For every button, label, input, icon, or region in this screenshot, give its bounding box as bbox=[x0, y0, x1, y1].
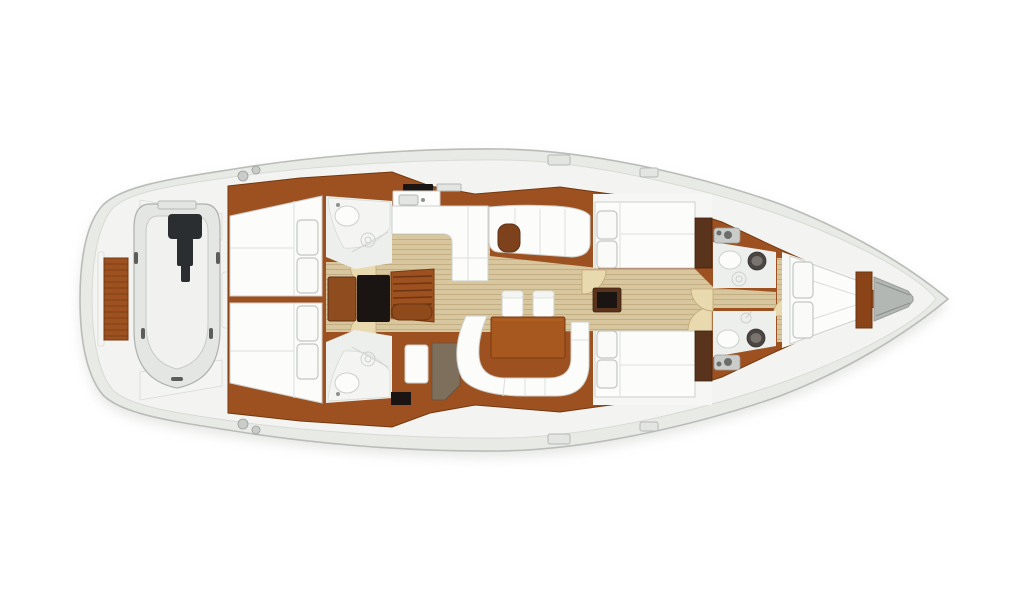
wardrobe bbox=[695, 218, 712, 268]
winch-icon bbox=[252, 426, 260, 434]
winch-icon bbox=[238, 171, 248, 181]
dinghy-transom bbox=[158, 201, 196, 209]
winch-icon bbox=[238, 419, 248, 429]
deck-hatch-icon bbox=[640, 168, 658, 177]
locker-hatch bbox=[391, 392, 411, 405]
pillow bbox=[597, 360, 617, 388]
pillow bbox=[297, 258, 318, 293]
pillow bbox=[793, 262, 813, 298]
mid-cabin-port bbox=[593, 194, 712, 268]
deck-hatch-icon bbox=[548, 434, 570, 444]
faucet-icon bbox=[421, 198, 425, 202]
faucet-icon bbox=[336, 392, 340, 396]
stool-back bbox=[533, 291, 554, 298]
deck-hatch-icon bbox=[548, 155, 570, 165]
pillow bbox=[793, 302, 813, 338]
stool bbox=[533, 291, 554, 317]
pillow bbox=[597, 241, 617, 268]
corridor-locker bbox=[593, 288, 621, 312]
companionway-cabinet bbox=[405, 345, 428, 383]
pillow bbox=[597, 211, 617, 239]
winch-icon bbox=[252, 166, 260, 174]
berth-foot-panel bbox=[856, 272, 872, 328]
galley-hatch bbox=[437, 184, 461, 191]
pillow bbox=[297, 220, 318, 255]
transom-step bbox=[98, 252, 104, 346]
washbasin-icon bbox=[719, 251, 741, 269]
washbasin-icon bbox=[717, 330, 739, 348]
tender-garage bbox=[134, 201, 220, 388]
yacht-floorplan-image: Sailing yacht interior layout plan, top … bbox=[0, 0, 1024, 600]
pillow bbox=[297, 344, 318, 379]
stool-back bbox=[502, 291, 523, 298]
wardrobe bbox=[695, 331, 712, 381]
mid-cabin-starboard bbox=[593, 331, 712, 405]
galley-sink-icon bbox=[399, 195, 418, 205]
stairs-landing bbox=[392, 304, 432, 320]
engine-box bbox=[357, 275, 390, 322]
aft-head-starboard bbox=[326, 330, 392, 403]
washbasin-icon bbox=[335, 206, 359, 226]
swim-platform bbox=[104, 258, 128, 340]
toilet-lid bbox=[752, 256, 763, 266]
side-table bbox=[498, 224, 520, 252]
dining-table bbox=[491, 317, 565, 358]
stool bbox=[502, 291, 523, 317]
companionway-stairs bbox=[391, 269, 434, 322]
pillow bbox=[597, 331, 617, 358]
deck-hatch-icon bbox=[640, 422, 658, 431]
washbasin-icon bbox=[335, 373, 359, 393]
pillow bbox=[297, 306, 318, 341]
floorplan-canvas bbox=[0, 0, 1024, 600]
faucet-icon bbox=[336, 203, 340, 207]
toilet-lid bbox=[751, 333, 762, 343]
locker-opening bbox=[597, 292, 617, 308]
chart-desk bbox=[328, 277, 356, 321]
aft-head-port bbox=[326, 196, 392, 269]
